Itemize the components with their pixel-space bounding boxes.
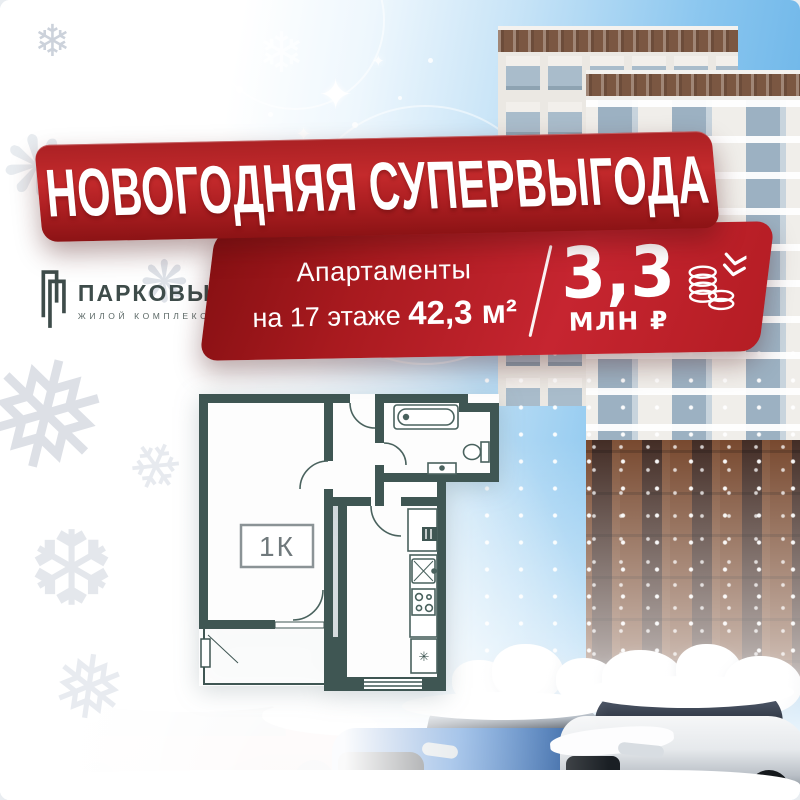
room-label: 1К [259, 531, 295, 562]
offer-line2: на 17 этаже 42,3 м² [252, 292, 517, 335]
offer-area: 42,3 м² [408, 292, 517, 331]
headline-title: НОВОГОДНЯЯ СУПЕРВЫГОДА [42, 141, 712, 233]
toilet-icon [464, 445, 481, 460]
snowflake-icon: ❄ [34, 16, 71, 67]
price-block: 3,3 МЛН ₽ [561, 242, 748, 337]
arrow-down-icon [723, 254, 746, 276]
offer-text: Апартаменты на 17 этаже 42,3 м² [251, 253, 517, 335]
divider-slash [528, 245, 552, 337]
toilet-tank [481, 442, 489, 462]
brick-parapet [586, 70, 800, 96]
bathtub-drain [404, 415, 409, 420]
snow-on-roof [582, 676, 794, 708]
license-plate [18, 748, 48, 760]
taillight [0, 726, 11, 744]
price-column: 3,3 МЛН ₽ [561, 243, 676, 337]
offer-floor: на 17 этаже [252, 300, 401, 333]
sink-tap [432, 569, 436, 573]
floor-plan: ✳ 1К [194, 389, 504, 694]
fridge-symbol: ✳ [419, 649, 430, 664]
offer-card-content: Апартаменты на 17 этаже 42,3 м² 3,3 МЛН … [207, 223, 767, 361]
offer-line1: Апартаменты [251, 253, 516, 289]
brick-parapet [498, 26, 738, 52]
price-value: 3,3 [561, 240, 676, 309]
vent-shaft [408, 509, 437, 551]
snow-drift [0, 770, 800, 800]
balcony-door-sill [275, 622, 324, 628]
sink-tap [440, 466, 444, 470]
coins-price-drop-icon [686, 252, 747, 315]
headline-banner: НОВОГОДНЯЯ СУПЕРВЫГОДА [34, 131, 720, 242]
double-bracket-logo-icon [40, 252, 68, 348]
promo-banner-image: ❅ ❄ ✦ ✦ ✦ [0, 0, 800, 800]
kitchen-window [364, 679, 422, 689]
room-label-box: 1К [241, 525, 313, 567]
logo: ПАРКОВЫЙ ЖИЛОЙ КОМПЛЕКС [40, 252, 230, 348]
